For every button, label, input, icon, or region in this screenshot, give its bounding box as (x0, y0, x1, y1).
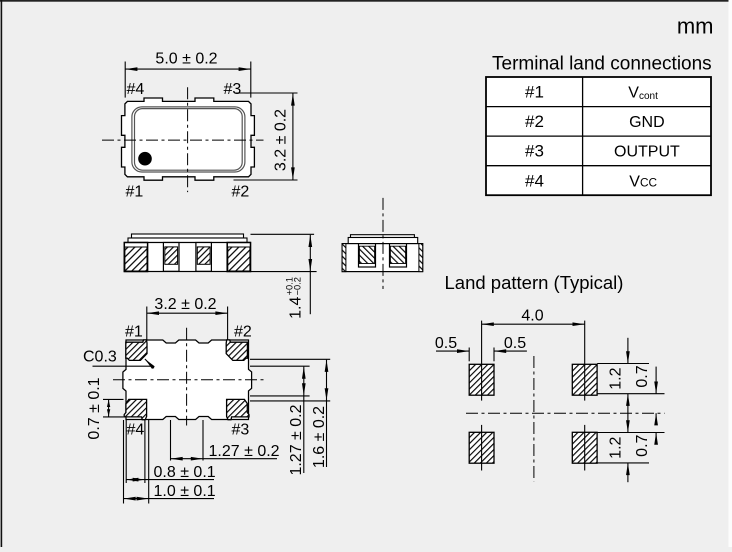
svg-text:3.2 ± 0.2: 3.2 ± 0.2 (273, 109, 290, 171)
svg-text:OUTPUT: OUTPUT (614, 144, 680, 161)
svg-text:1.0 ± 0.1: 1.0 ± 0.1 (154, 483, 216, 500)
svg-text:0.7: 0.7 (634, 365, 651, 387)
svg-text:Land pattern (Typical): Land pattern (Typical) (445, 272, 624, 293)
svg-text:3.2 ± 0.2: 3.2 ± 0.2 (154, 296, 216, 313)
svg-text:0.7: 0.7 (634, 434, 651, 456)
svg-text:VCC: VCC (629, 173, 657, 190)
svg-text:0.5: 0.5 (504, 335, 526, 352)
svg-text:#3: #3 (525, 142, 544, 161)
svg-text:#4: #4 (127, 422, 145, 439)
svg-text:1.4: 1.4 (288, 297, 305, 319)
svg-text:0.7 ± 0.1: 0.7 ± 0.1 (86, 377, 103, 439)
svg-text:#2: #2 (232, 184, 250, 201)
svg-text:1.2: 1.2 (608, 436, 625, 458)
svg-text:4.0: 4.0 (521, 308, 543, 325)
svg-text:#2: #2 (234, 324, 252, 341)
svg-text:#1: #1 (525, 83, 544, 102)
svg-text:#3: #3 (224, 81, 242, 98)
svg-text:C0.3: C0.3 (83, 349, 117, 366)
svg-text:1.27 ± 0.2: 1.27 ± 0.2 (288, 404, 305, 475)
svg-text:−0.2: −0.2 (293, 277, 303, 295)
svg-text:#1: #1 (126, 184, 144, 201)
svg-text:#4: #4 (127, 81, 145, 98)
svg-text:GND: GND (629, 114, 665, 131)
svg-text:#3: #3 (232, 422, 250, 439)
svg-text:1.6 ± 0.2: 1.6 ± 0.2 (311, 406, 328, 468)
svg-text:5.0 ± 0.2: 5.0 ± 0.2 (155, 51, 217, 68)
svg-text:mm: mm (677, 14, 714, 39)
svg-text:1.2: 1.2 (608, 367, 625, 389)
svg-text:Terminal land connections: Terminal land connections (492, 53, 712, 74)
svg-text:0.8 ± 0.1: 0.8 ± 0.1 (154, 464, 216, 481)
svg-text:#4: #4 (525, 171, 544, 190)
svg-text:0.5: 0.5 (435, 335, 457, 352)
svg-text:1.27 ± 0.2: 1.27 ± 0.2 (209, 443, 280, 460)
svg-text:#1: #1 (125, 324, 143, 341)
svg-text:#2: #2 (525, 112, 544, 131)
